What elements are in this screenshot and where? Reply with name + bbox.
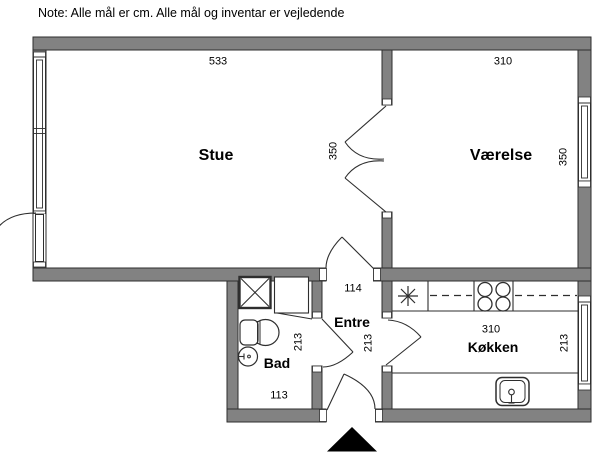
floor-plan-drawing: [0, 0, 600, 455]
jamb-cap: [374, 269, 381, 281]
koekken-door-swing-icon: [386, 320, 421, 365]
wall-top: [33, 37, 591, 50]
stue-entre-door-swing-icon: [326, 237, 374, 269]
room-label-vaerelse: Værelse: [470, 148, 532, 164]
jamb-cap: [34, 262, 46, 267]
jamb-cap: [383, 366, 392, 372]
jamb-cap: [313, 366, 322, 372]
cabinet-icon: [275, 277, 309, 313]
dim-koekken-width: 310: [482, 325, 500, 336]
entrance-door-swing-icon: [327, 374, 375, 410]
jamb-cap: [579, 181, 591, 187]
room-label-koekken: Køkken: [468, 340, 519, 354]
jamb-cap: [383, 99, 392, 105]
jamb-cap: [579, 296, 591, 302]
dim-entre-width: 114: [344, 284, 362, 295]
wall-bottom-left: [227, 409, 326, 422]
wall-bottom-right: [376, 409, 592, 422]
wall-bad-left: [227, 281, 238, 409]
walls: [33, 37, 591, 422]
wall-stue-vaerelse-upper: [382, 50, 392, 105]
jamb-cap: [34, 52, 46, 57]
bathroom-fixtures: [238, 277, 309, 366]
jamb-cap: [320, 410, 327, 422]
doors: [277, 106, 421, 410]
wall-koekken-top: [374, 268, 592, 281]
floor-plan-page: Note: Alle mål er cm. Alle mål og invent…: [0, 0, 600, 455]
double-door-swing-icon: [345, 106, 386, 212]
dim-bad-depth: 213: [294, 333, 305, 351]
washbasin-icon: [238, 347, 258, 366]
wall-bad-entre-lower: [312, 366, 322, 409]
jamb-cap: [313, 312, 322, 318]
dim-vaerelse-depth: 350: [559, 148, 570, 166]
lamp-asterisk-icon: [398, 286, 418, 306]
balcony-door-icon: [36, 215, 44, 262]
jamb-cap: [383, 212, 392, 218]
jamb-cap: [320, 269, 327, 281]
jamb-cap: [579, 97, 591, 103]
entrance-arrow-icon: [327, 427, 377, 452]
kitchen-sink-icon: [496, 378, 529, 406]
jamb-cap: [376, 410, 383, 422]
door-jambs: [313, 99, 392, 422]
dim-stue-width: 533: [209, 57, 227, 68]
jamb-cap: [579, 384, 591, 390]
toilet-icon: [240, 320, 279, 346]
room-label-bad: Bad: [264, 356, 290, 370]
dim-vaerelse-width: 310: [494, 57, 512, 68]
dim-koekken-depth: 213: [560, 334, 571, 352]
stove-icon: [478, 283, 510, 312]
dim-entre-depth: 213: [364, 334, 375, 352]
dim-bad-width: 113: [270, 391, 288, 402]
wall-entre-koekken-lower: [382, 366, 392, 409]
room-label-stue: Stue: [199, 148, 234, 164]
jamb-cap: [383, 312, 392, 318]
room-label-entre: Entre: [334, 315, 370, 329]
wall-stue-vaerelse-lower: [382, 212, 392, 268]
dim-stue-depth: 350: [329, 142, 340, 160]
balcony-door-swing-icon: [0, 213, 36, 262]
